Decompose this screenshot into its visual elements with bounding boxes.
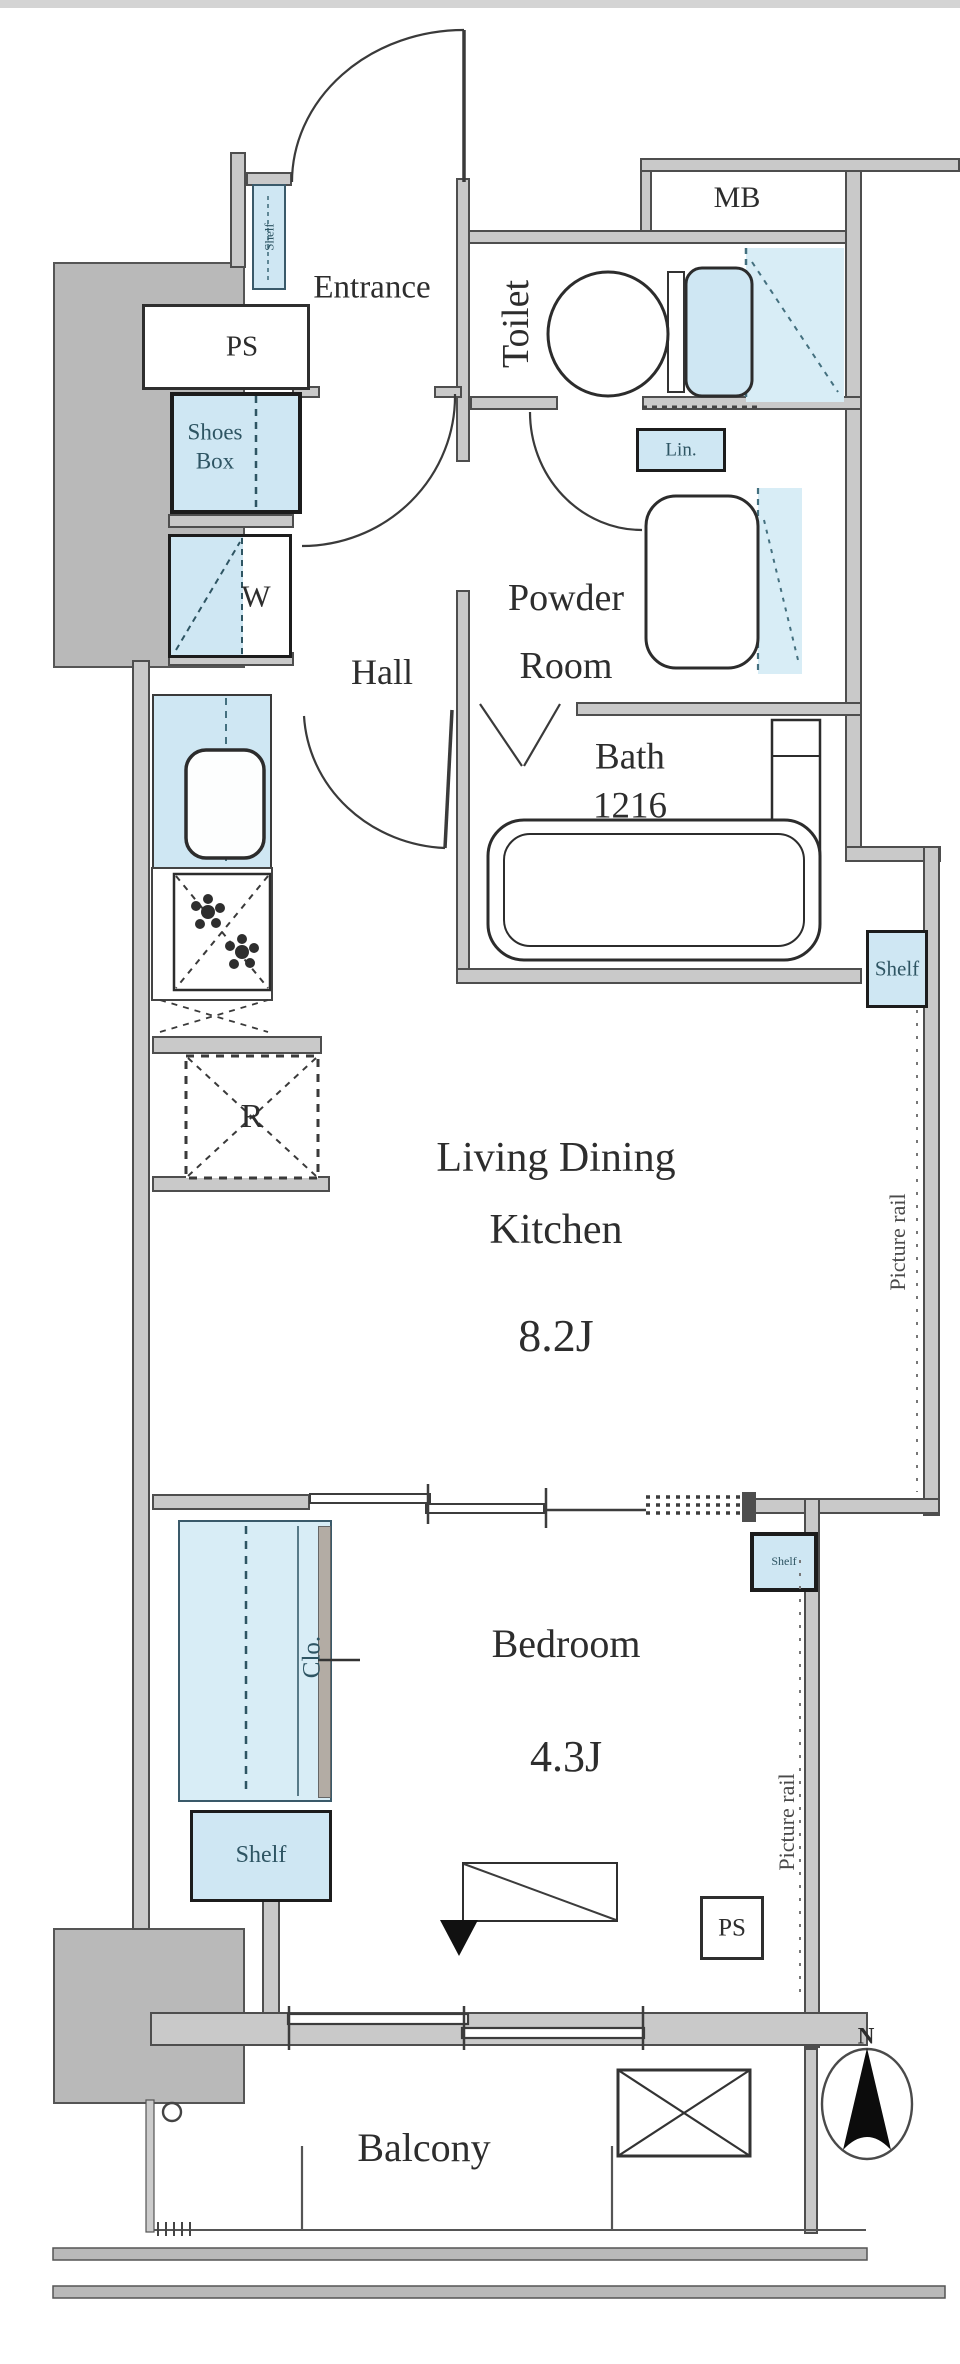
entrance-shelf-label: Shelf bbox=[263, 223, 276, 250]
front-door-arc bbox=[292, 30, 464, 182]
wall-segment bbox=[168, 514, 294, 528]
wall-partition bbox=[152, 1494, 310, 1510]
powder-door-arc bbox=[530, 412, 642, 530]
room-label-toilet: Toilet bbox=[497, 280, 535, 368]
ps-bottom-label: PS bbox=[718, 1916, 746, 1941]
direction-marker-triangle bbox=[440, 1920, 478, 1956]
wall-segment bbox=[640, 158, 960, 172]
bedroom-shelf-label: Shelf bbox=[236, 1843, 287, 1867]
wall-left-main bbox=[132, 660, 150, 1930]
wall-segment bbox=[642, 396, 862, 410]
compass-icon bbox=[822, 2048, 912, 2159]
room-size-ldk: 8.2J bbox=[518, 1313, 593, 1359]
compass-north-label: N bbox=[858, 2025, 875, 2048]
bedroom-counter bbox=[462, 1862, 618, 1922]
wall-bath-bottom bbox=[456, 968, 862, 984]
room-label-balcony: Balcony bbox=[357, 2128, 490, 2168]
wall-segment bbox=[456, 590, 470, 984]
ps-top-label: PS bbox=[226, 333, 258, 362]
washer-label: W bbox=[241, 581, 270, 612]
wall-segment bbox=[230, 152, 246, 268]
partition-sliding-door bbox=[310, 1484, 756, 1528]
closet-label: Clo. bbox=[300, 1636, 325, 1678]
room-label-ldk-1: Living Dining bbox=[436, 1137, 675, 1179]
bath-door-line bbox=[480, 704, 522, 766]
floor-plan: Entrance PS Shoes Box Shelf Toilet MB Po… bbox=[0, 0, 960, 2364]
wall-segment bbox=[262, 1896, 280, 2014]
bath-door-line bbox=[524, 704, 560, 766]
meter-box-label: MB bbox=[714, 183, 761, 213]
room-size-bedroom: 4.3J bbox=[530, 1735, 602, 1779]
wall-segment-toilet-top bbox=[456, 230, 862, 244]
wall-segment bbox=[434, 386, 462, 398]
image-frame-top bbox=[0, 0, 960, 8]
toilet-fixture bbox=[548, 248, 844, 402]
linen-label: Lin. bbox=[665, 441, 696, 460]
wall-segment bbox=[752, 1498, 940, 1514]
refrigerator-label: R bbox=[241, 1100, 264, 1134]
washbasin bbox=[646, 488, 802, 674]
room-label-bath: Bath bbox=[595, 739, 665, 776]
ldk-door-arc bbox=[304, 716, 445, 848]
washer-space-blue bbox=[171, 537, 243, 655]
wall-segment bbox=[456, 178, 470, 462]
wall-powder-bath bbox=[576, 702, 862, 716]
wall-segment bbox=[640, 170, 652, 234]
partition-shelf-label: Shelf bbox=[771, 1555, 796, 1567]
shoes-box-label-1: Shoes bbox=[188, 421, 243, 444]
room-label-hall: Hall bbox=[351, 654, 413, 690]
wall-balcony-right bbox=[804, 2048, 818, 2234]
room-size-bath: 1216 bbox=[593, 788, 667, 825]
ldk-shelf-label: Shelf bbox=[875, 959, 919, 980]
entrance-hall-door-arc bbox=[302, 394, 455, 546]
room-label-ldk-2: Kitchen bbox=[490, 1209, 623, 1251]
shoes-box bbox=[170, 392, 302, 514]
kitchen-counter bbox=[152, 694, 272, 870]
picture-rail-label-ldk: Picture rail bbox=[887, 1193, 909, 1290]
wall-kitchen-stub bbox=[152, 1176, 330, 1192]
shoes-box-label-2: Box bbox=[196, 450, 234, 473]
room-label-bedroom: Bedroom bbox=[492, 1624, 641, 1664]
ac-unit-icon bbox=[618, 2070, 750, 2156]
wall-kitchen-stub bbox=[152, 1036, 322, 1054]
room-label-powder-2: Room bbox=[520, 647, 613, 685]
wall-right-upper bbox=[845, 170, 862, 862]
room-label-powder-1: Powder bbox=[508, 579, 624, 617]
stove bbox=[152, 868, 272, 1032]
wall-bedroom-balcony bbox=[150, 2012, 868, 2046]
room-label-entrance: Entrance bbox=[313, 272, 430, 305]
wall-segment bbox=[470, 396, 558, 410]
ldk-door-panel bbox=[445, 710, 452, 848]
picture-rail-label-bedroom: Picture rail bbox=[776, 1773, 798, 1870]
